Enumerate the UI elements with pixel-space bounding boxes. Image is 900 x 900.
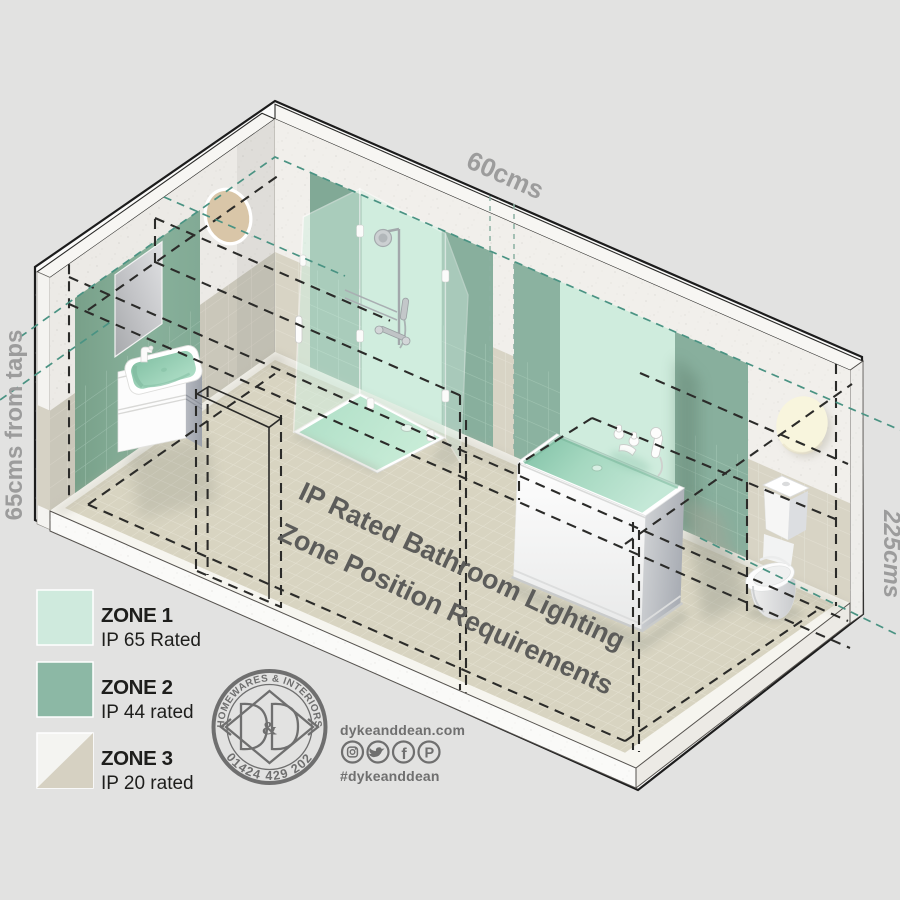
svg-text:ZONE 3: ZONE 3 xyxy=(101,747,173,770)
svg-text:IP 65 Rated: IP 65 Rated xyxy=(101,630,201,651)
svg-text:ZONE 2: ZONE 2 xyxy=(101,676,173,699)
svg-text:&: & xyxy=(262,719,278,740)
svg-text:IP 20 rated: IP 20 rated xyxy=(101,773,194,794)
svg-text:65cms from taps: 65cms from taps xyxy=(1,330,28,521)
svg-text:#dykeanddean: #dykeanddean xyxy=(340,768,440,784)
svg-text:IP 44 rated: IP 44 rated xyxy=(101,702,194,723)
svg-text:P: P xyxy=(424,746,434,762)
svg-text:ZONE 1: ZONE 1 xyxy=(101,604,173,627)
svg-text:f: f xyxy=(401,746,407,763)
svg-text:225cms: 225cms xyxy=(878,509,900,598)
svg-text:dykeanddean.com: dykeanddean.com xyxy=(340,722,465,738)
